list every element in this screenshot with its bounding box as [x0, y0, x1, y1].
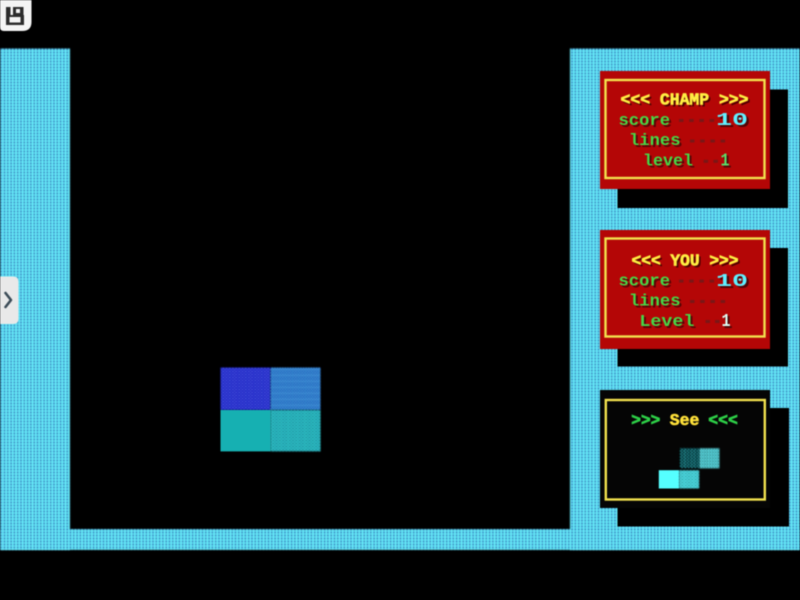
svg-text:lines: lines — [629, 132, 681, 151]
svg-text:score: score — [619, 272, 671, 291]
svg-text:level: level — [643, 152, 693, 171]
svg-text:Level: Level — [639, 313, 694, 332]
svg-text:<<< CHAMP >>>: <<< CHAMP >>> — [621, 92, 749, 111]
svg-text:See: See — [670, 412, 700, 431]
svg-text:score: score — [619, 112, 671, 131]
svg-text:<<< YOU >>>: <<< YOU >>> — [632, 252, 739, 271]
svg-text:1: 1 — [722, 312, 731, 332]
svg-text:lines: lines — [629, 293, 681, 312]
svg-text:1: 1 — [721, 152, 730, 172]
svg-text:<<<: <<< — [708, 412, 738, 431]
svg-text:>>>: >>> — [631, 412, 660, 431]
svg-text:10: 10 — [716, 111, 748, 131]
svg-text:10: 10 — [716, 272, 748, 292]
